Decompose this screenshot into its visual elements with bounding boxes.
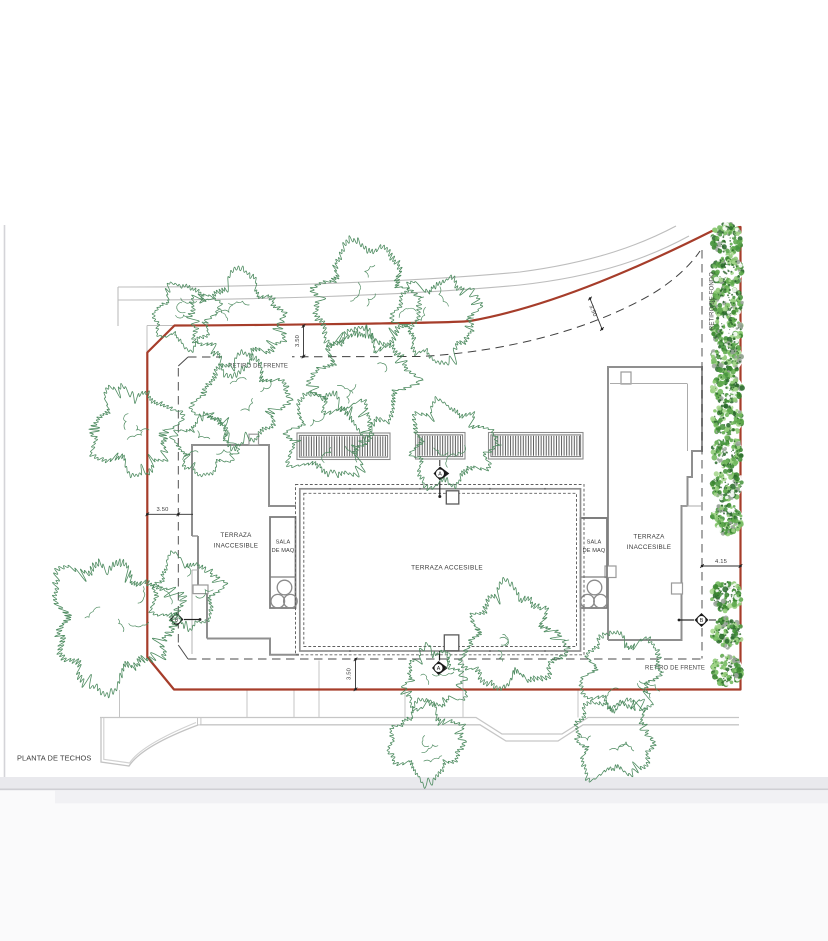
svg-text:4.15: 4.15 xyxy=(715,559,727,565)
svg-text:INACCESIBLE: INACCESIBLE xyxy=(627,544,671,551)
svg-text:3.50: 3.50 xyxy=(347,668,353,680)
svg-text:3.50: 3.50 xyxy=(156,507,168,513)
svg-text:INACCESIBLE: INACCESIBLE xyxy=(214,543,258,550)
svg-text:A: A xyxy=(437,666,441,672)
svg-text:3.50: 3.50 xyxy=(295,335,301,347)
svg-text:TERRAZA: TERRAZA xyxy=(633,534,665,541)
svg-text:SALA: SALA xyxy=(276,540,291,546)
svg-text:PLANTA DE TECHOS: PLANTA DE TECHOS xyxy=(17,754,91,763)
svg-text:SALA: SALA xyxy=(587,540,602,546)
svg-text:TERRAZA ACCESIBLE: TERRAZA ACCESIBLE xyxy=(411,565,483,572)
svg-text:TERRAZA: TERRAZA xyxy=(220,532,252,539)
svg-text:DE MAQ: DE MAQ xyxy=(583,548,606,554)
svg-text:A: A xyxy=(438,472,442,478)
svg-text:RETIRO DE FRENTE: RETIRO DE FRENTE xyxy=(645,666,705,672)
svg-text:RETIRO DE FONDO: RETIRO DE FONDO xyxy=(710,272,716,330)
svg-text:RETIRO DE FRENTE: RETIRO DE FRENTE xyxy=(228,364,288,370)
svg-text:DE MAQ: DE MAQ xyxy=(272,548,295,554)
svg-text:B: B xyxy=(700,618,704,624)
